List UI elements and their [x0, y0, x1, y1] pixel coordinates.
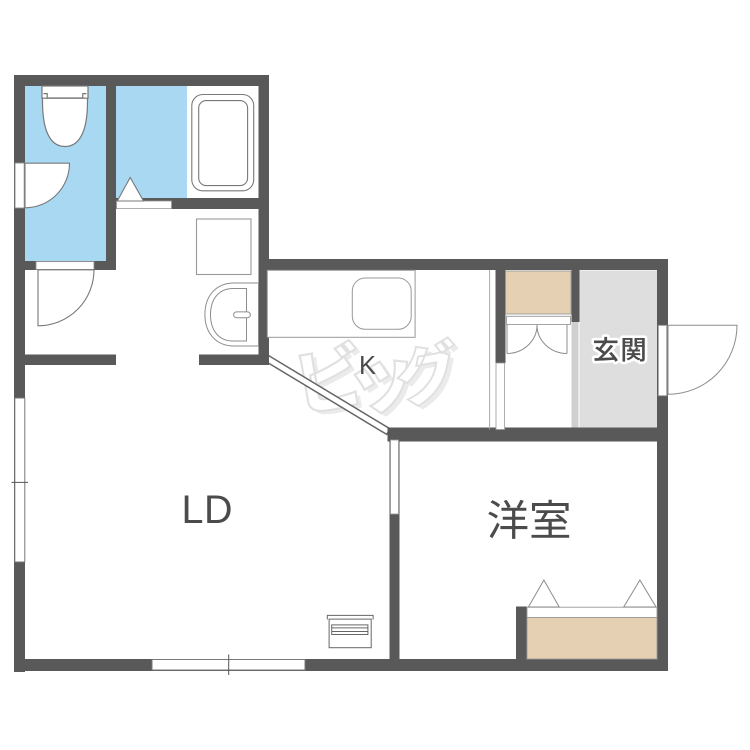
- svg-text:LD: LD: [182, 488, 234, 532]
- svg-text:K: K: [359, 352, 376, 380]
